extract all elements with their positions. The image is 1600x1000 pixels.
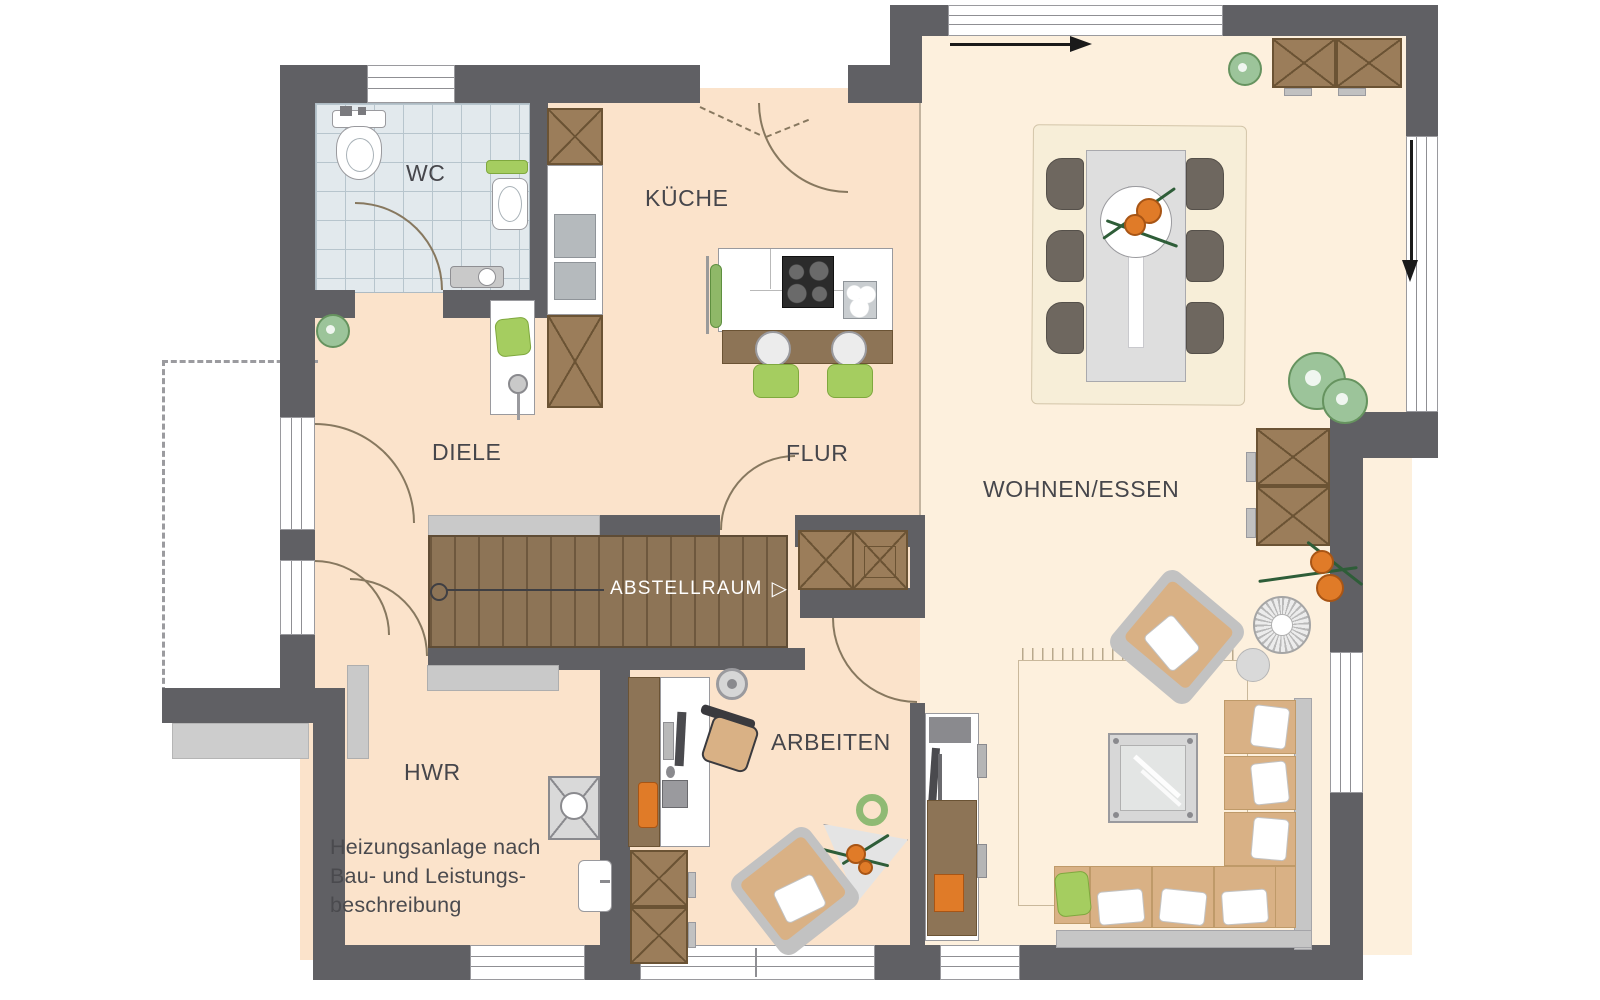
floor-change-line xyxy=(919,103,921,527)
slider-arrow-line xyxy=(950,43,1070,46)
stair-side-ledge xyxy=(428,515,600,537)
heating-annotation: Heizungsanlage nach Bau- und Leistungs- … xyxy=(330,833,541,920)
sofa-pillow-r2 xyxy=(1250,760,1290,806)
desk-top xyxy=(660,677,710,847)
wall-left-b xyxy=(280,530,315,560)
tv-shelf-box xyxy=(934,874,964,912)
arbeiten-window-mullion xyxy=(755,948,757,977)
wreath-decor xyxy=(856,794,888,826)
island-plant xyxy=(710,264,722,328)
window-arrow-line xyxy=(1410,140,1413,260)
desk-bin xyxy=(638,782,658,828)
sideboard-right-top xyxy=(1256,428,1330,486)
plant-big-b xyxy=(1322,378,1368,424)
wall-left-a xyxy=(280,65,315,417)
sofa-pillow-r3 xyxy=(1250,817,1290,862)
mouse xyxy=(666,766,675,778)
wall-step xyxy=(890,5,922,103)
wall-wc-right xyxy=(530,103,548,290)
heating-annotation-line2: Bau- und Leistungs- xyxy=(330,862,541,891)
tv-stand xyxy=(938,754,942,800)
living-window-right xyxy=(1330,652,1363,793)
living-window-bottom xyxy=(940,945,1020,980)
sofa-frame-bottom xyxy=(1056,930,1312,948)
washing-machine-door xyxy=(560,792,588,820)
coffee-table-glass xyxy=(1120,745,1186,811)
flower-bloom-1 xyxy=(1310,550,1334,574)
island-divider-1 xyxy=(770,249,771,289)
wardrobe-handle-2 xyxy=(688,922,696,948)
flur-closet-inner xyxy=(864,546,896,578)
sofa-pillow-b1 xyxy=(1097,888,1146,926)
wc-radiator-knob xyxy=(478,268,496,286)
side-table-flower-2 xyxy=(858,860,873,875)
diele-terrace-door-2 xyxy=(280,560,315,635)
table-screw-2 xyxy=(1187,738,1193,744)
sideboard-handle-1 xyxy=(1284,88,1312,96)
wall-right-b xyxy=(1330,458,1363,654)
glass-shine-2 xyxy=(1140,769,1181,807)
kitchen-tall-cabinet-bottom xyxy=(547,315,603,408)
slider-arrow-head-icon xyxy=(1070,36,1092,52)
terrace-slider-window xyxy=(948,5,1223,36)
bar-stool-2 xyxy=(831,331,867,367)
plate-decor-2 xyxy=(1124,214,1146,236)
stool-cushion-2 xyxy=(827,364,873,398)
hwr-sink xyxy=(578,860,612,912)
table-screw-3 xyxy=(1113,812,1119,818)
hall-bench-cushion xyxy=(494,316,532,357)
sofa-green-pillow xyxy=(1054,870,1092,917)
sideboard-handle-2 xyxy=(1338,88,1366,96)
dining-chair-right-2 xyxy=(1186,230,1224,282)
wardrobe-handle-1 xyxy=(688,872,696,898)
wall-wardrobe-bottom xyxy=(800,588,925,618)
wall-top-a xyxy=(280,65,700,103)
ceiling-lamp-center xyxy=(727,679,737,689)
table-screw-1 xyxy=(1113,738,1119,744)
flur-closet-left xyxy=(798,530,854,590)
dining-chair-left-3 xyxy=(1046,302,1084,354)
wc-towel xyxy=(486,160,528,174)
sofa-pillow-b2 xyxy=(1158,888,1207,927)
hwr-window-bottom xyxy=(470,945,585,980)
hwr-sink-tap xyxy=(600,880,610,883)
tv-bracket-1 xyxy=(977,744,987,778)
wall-arbeiten-hwr xyxy=(600,663,630,980)
tv-lowboard-top xyxy=(929,717,971,743)
tv-lowboard-shelf xyxy=(927,800,977,936)
dining-chair-left-1 xyxy=(1046,158,1084,210)
island-breakfast-bar xyxy=(722,330,893,364)
coat-hook xyxy=(508,374,528,394)
flower-bloom-2 xyxy=(1316,574,1344,602)
wc-shelf-item xyxy=(340,106,352,116)
wc-shelf-item-2 xyxy=(358,107,366,115)
sideboard-right-handle-1 xyxy=(1246,452,1256,482)
island-sink xyxy=(843,281,877,319)
floor-plan: ABSTELLRAUM ▷ xyxy=(0,0,1600,1000)
room-label-flur: FLUR xyxy=(786,442,848,465)
wicker-basket-lamp xyxy=(1253,596,1311,654)
table-screw-4 xyxy=(1187,812,1193,818)
hwr-radiator xyxy=(347,665,369,759)
plant-top xyxy=(1228,52,1262,86)
room-label-kueche: KÜCHE xyxy=(645,187,729,210)
wall-mid-vert-a xyxy=(910,527,925,590)
island-plant-stem xyxy=(706,256,709,334)
stool-cushion-1 xyxy=(753,364,799,398)
wc-window xyxy=(367,65,455,103)
arbeiten-wardrobe-top xyxy=(630,850,688,907)
room-label-diele: DIELE xyxy=(432,441,501,464)
dining-chair-left-2 xyxy=(1046,230,1084,282)
room-label-hwr: HWR xyxy=(404,761,461,784)
window-arrow-head-icon xyxy=(1402,260,1418,282)
sofa-pillow-r1 xyxy=(1250,704,1291,750)
room-label-wohnen-essen: WOHNEN/ESSEN xyxy=(983,478,1179,501)
dining-chair-right-1 xyxy=(1186,158,1224,210)
diele-plant xyxy=(316,314,350,348)
wall-left-c xyxy=(280,635,315,690)
room-label-wc: WC xyxy=(406,162,446,185)
kitchen-microwave xyxy=(554,262,596,300)
abstellraum-label: ABSTELLRAUM ▷ xyxy=(610,578,788,600)
toilet-bowl-inner xyxy=(346,138,374,172)
stair-walkline xyxy=(446,589,604,591)
wall-right-a xyxy=(1406,5,1438,136)
coat-hook-rod xyxy=(517,394,520,420)
room-label-arbeiten: ARBEITEN xyxy=(771,731,891,754)
island-cooktop xyxy=(782,256,834,308)
sofa-pillow-b3 xyxy=(1221,888,1269,925)
arbeiten-wardrobe-bottom xyxy=(630,907,688,964)
stair-walkline-circle xyxy=(430,583,448,601)
heating-annotation-line1: Heizungsanlage nach xyxy=(330,833,541,862)
tv-bracket-2 xyxy=(977,844,987,878)
bar-stool-1 xyxy=(755,331,791,367)
kitchen-oven xyxy=(554,214,596,258)
abstellraum-text: ABSTELLRAUM xyxy=(610,578,763,600)
diele-terrace-door-1 xyxy=(280,417,315,530)
glass-shine-1 xyxy=(1133,755,1181,799)
pc-tower xyxy=(662,780,688,808)
dining-chair-right-3 xyxy=(1186,302,1224,354)
sideboard-top-right xyxy=(1336,38,1402,88)
wall-mid-vert-b xyxy=(910,703,925,945)
kitchen-tall-cabinet-top xyxy=(547,108,603,165)
floor-sphere xyxy=(1236,648,1270,682)
sofa-frame-right xyxy=(1294,698,1312,950)
heating-annotation-line3: beschreibung xyxy=(330,891,541,920)
wc-washbasin-inner xyxy=(498,186,522,222)
sideboard-top-left xyxy=(1272,38,1336,88)
keyboard xyxy=(663,722,674,760)
understairs-shelf xyxy=(427,665,559,691)
stair-direction-arrow-icon: ▷ xyxy=(772,579,789,599)
sideboard-right-handle-2 xyxy=(1246,508,1256,538)
exterior-step-slab xyxy=(172,723,309,759)
sideboard-right-bottom xyxy=(1256,486,1330,546)
